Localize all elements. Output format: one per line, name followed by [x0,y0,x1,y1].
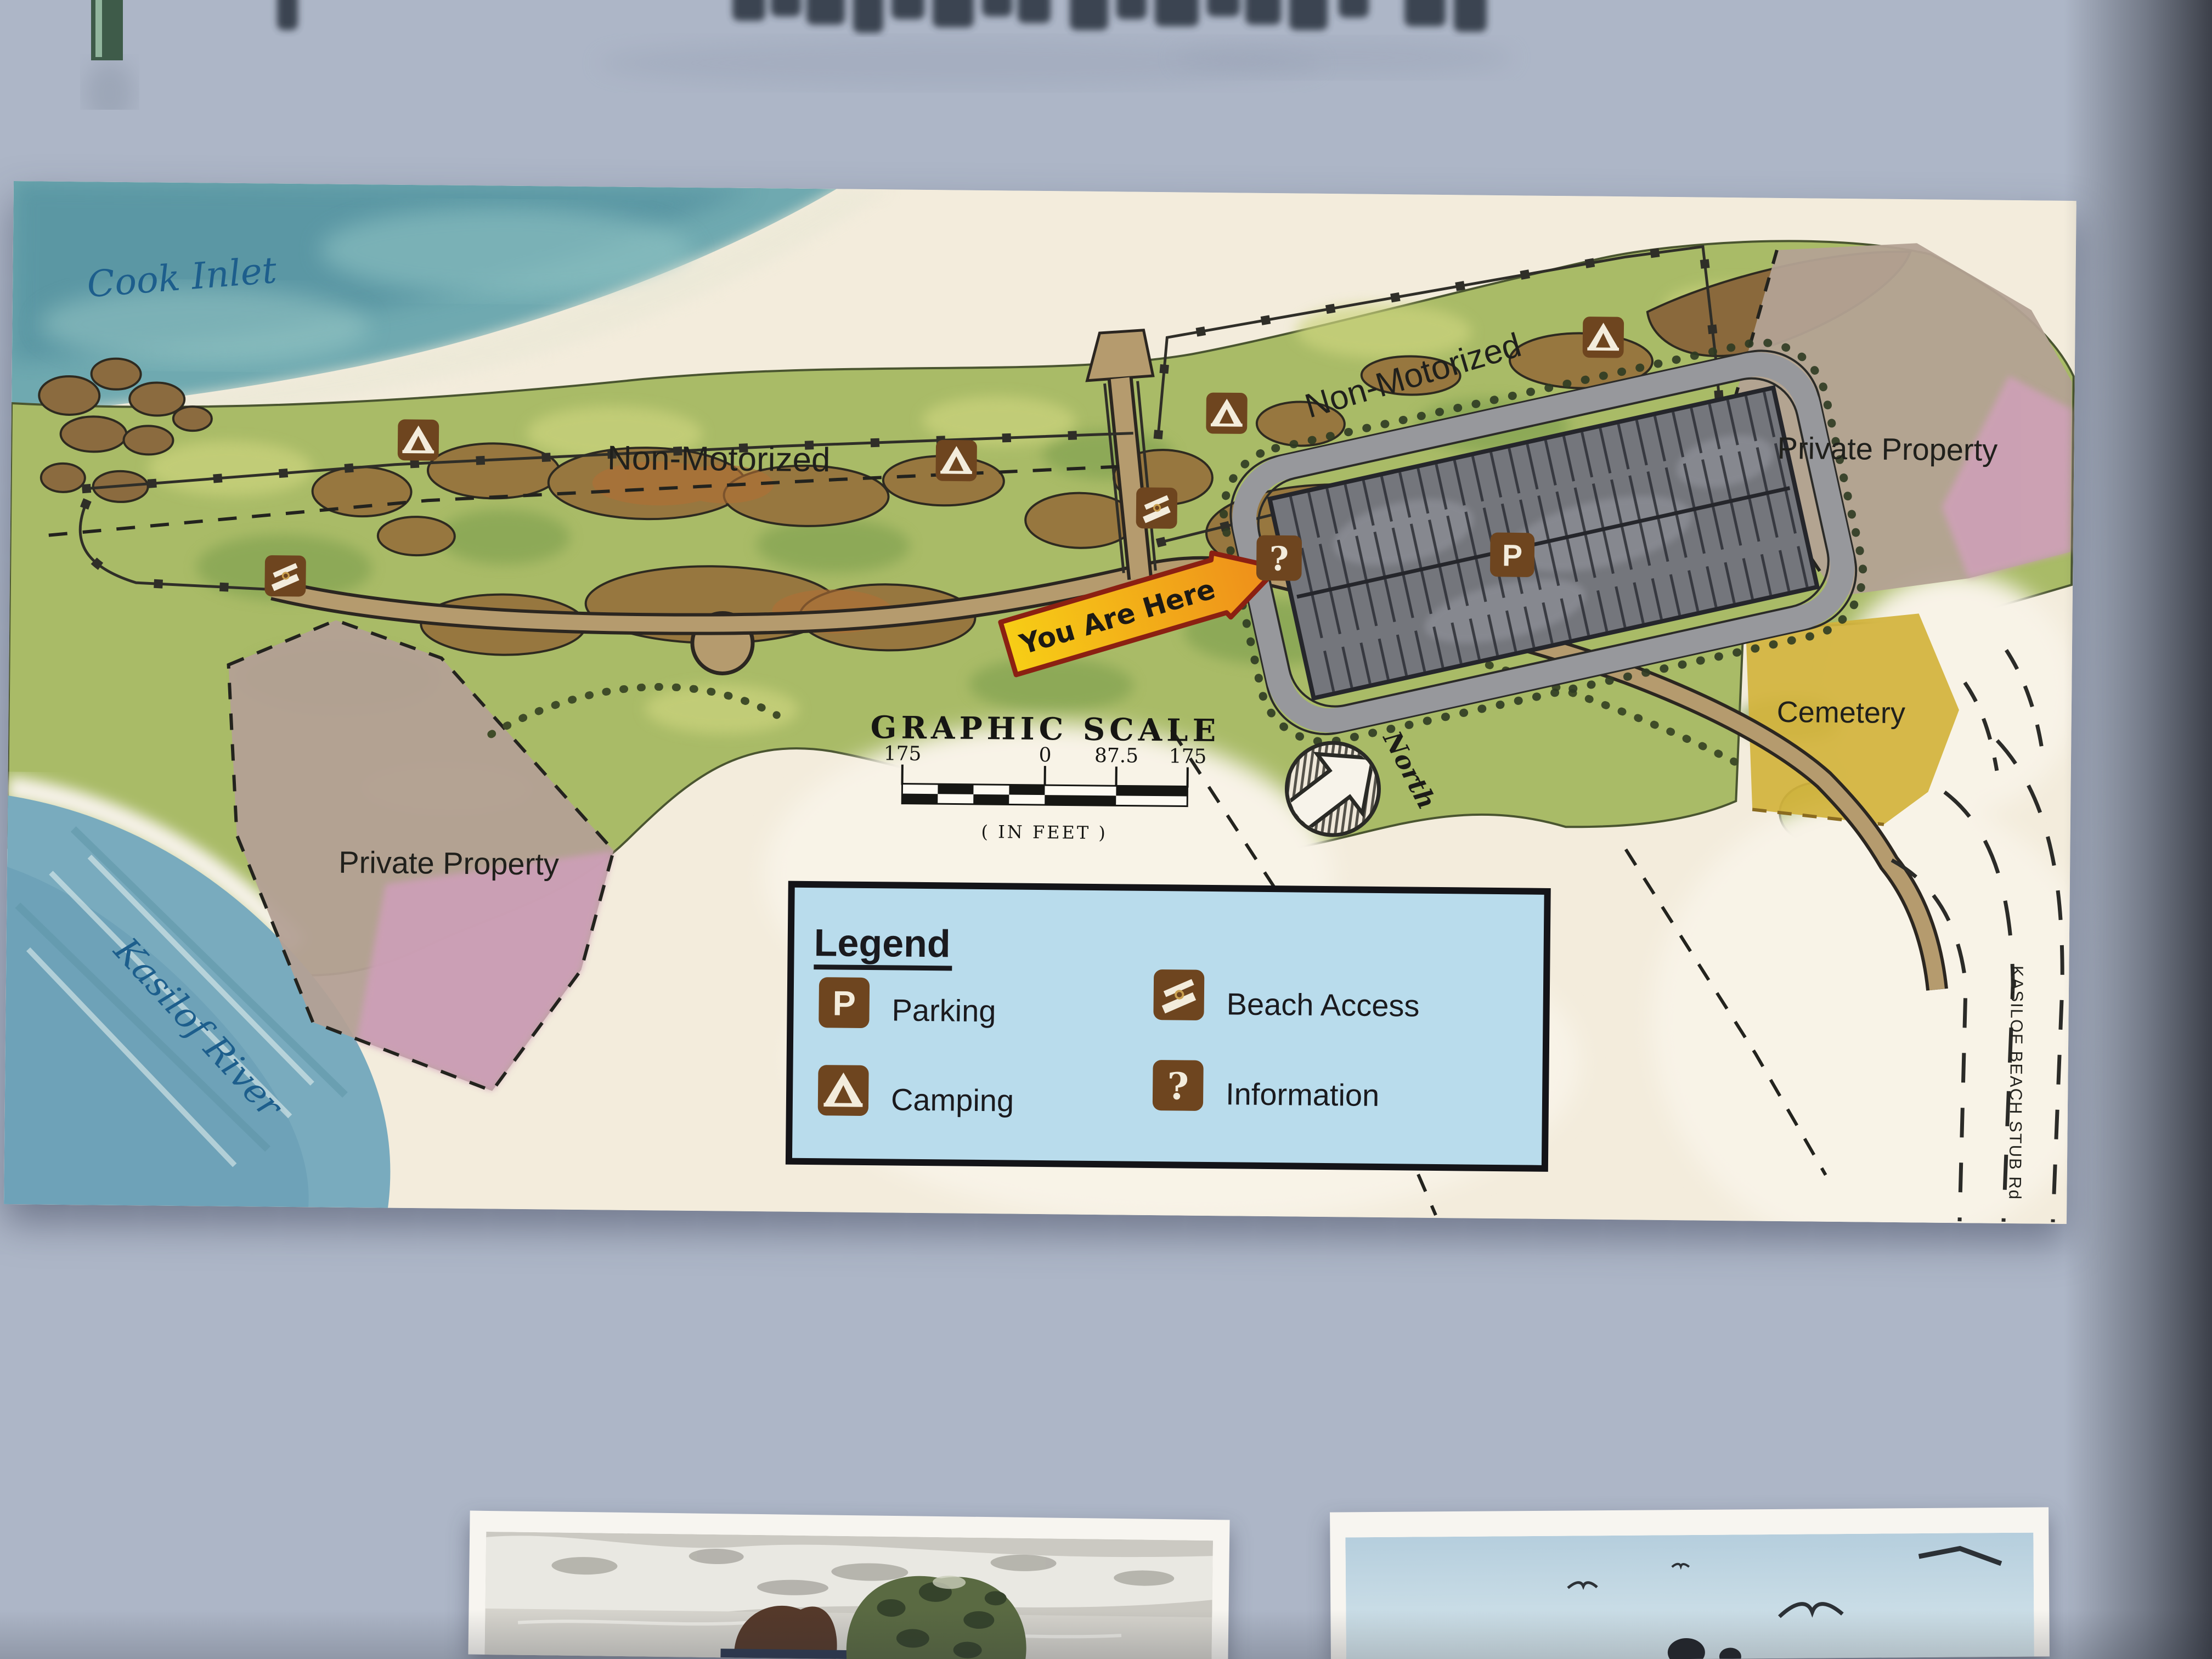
label-private-property-sw: Private Property [338,845,559,882]
label-private-property-ne: Private Property [1777,431,1997,467]
camping-icon-4 [1583,317,1624,358]
label-cemetery: Cemetery [1777,696,1906,730]
camping-icon-2 [935,440,977,482]
trail-map-panel: P ? [4,181,2076,1224]
legend-beach-access-label: Beach Access [1226,986,1419,1023]
photo-edge-shadow-right [2064,0,2212,1659]
photo-edge-shadow-bottom [0,1610,2212,1659]
beach-access-icon-2 [1136,487,1178,529]
scale-tick-1: 0 [1039,744,1051,766]
legend-beach-access-icon [1153,969,1204,1020]
legend-camping-label: Camping [891,1082,1014,1118]
scale-tick-3: 175 [1169,745,1206,768]
camping-icon-3 [1206,392,1248,434]
legend-information-icon [1153,1060,1204,1111]
label-non-motorized-west: Non-Motorized [607,439,831,479]
parking-icon-map [1490,533,1534,577]
legend-panel: Legend Parking Camping Beach Access Info… [789,884,1548,1169]
legend-camping-icon [818,1065,869,1116]
signpost-top [91,0,123,60]
label-stub-road: KASILOF BEACH STUB Rd [2005,966,2027,1200]
beach-access-icon-1 [264,555,306,597]
sign-photo: P ? [0,0,2212,1659]
legend-title: Legend [814,921,951,965]
legend-information-label: Information [1226,1076,1380,1113]
scale-units: ( IN FEET ) [981,821,1108,843]
cropped-title-text [0,0,2212,110]
camping-icon-1 [398,419,439,461]
scale-tick-0: 175 [883,742,921,765]
scale-title: GRAPHIC SCALE [870,709,1220,749]
scale-tick-2: 87.5 [1094,744,1139,768]
legend-parking-label: Parking [891,992,996,1028]
information-icon-map [1256,535,1302,580]
legend-parking-icon [819,977,870,1028]
